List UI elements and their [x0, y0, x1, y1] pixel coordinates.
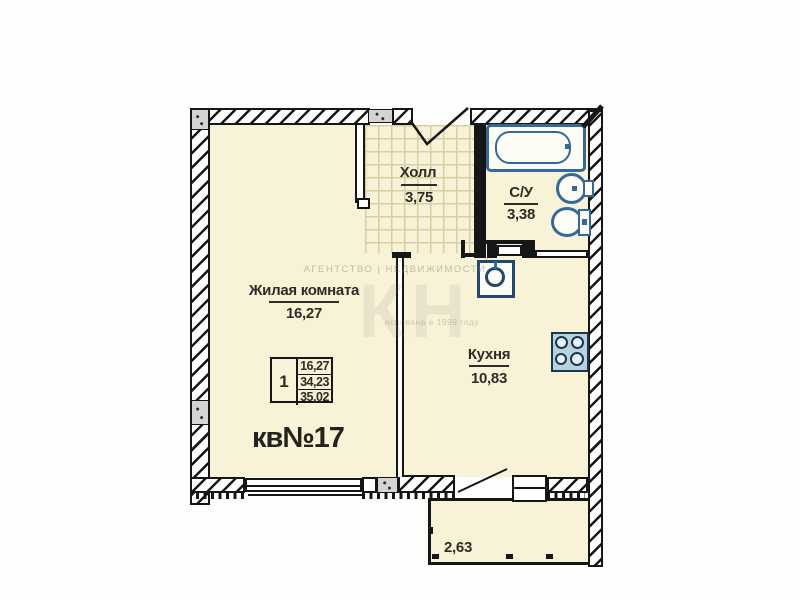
wall-bottom-corner	[190, 477, 245, 493]
wall-pier-grey	[377, 477, 398, 493]
balcony-area: 2,63	[438, 539, 478, 556]
hall-wall-stub-h	[461, 253, 486, 257]
wall-left	[190, 108, 210, 505]
kitchen-label: Кухня	[459, 347, 519, 364]
bathroom-wall-thin	[535, 250, 588, 258]
balcony-tick	[546, 554, 553, 559]
bathroom-wall-left	[474, 125, 486, 258]
bathroom-door-jamb	[487, 244, 497, 258]
wall-top-stub	[392, 108, 413, 125]
balcony-door-window	[512, 475, 547, 502]
wall-right	[588, 110, 603, 567]
bathroom-door-jamb	[522, 242, 535, 258]
hall-underline	[401, 184, 437, 186]
stove-burner	[570, 352, 584, 366]
stove-burner	[571, 336, 584, 349]
sink-dot	[572, 186, 577, 191]
wc-area: 3,38	[501, 206, 541, 223]
sink-tap	[583, 180, 594, 197]
window-dash-strip	[362, 493, 458, 499]
wc-underline	[504, 203, 538, 205]
living-room-label: Жилая комната	[234, 283, 374, 300]
wall-left-block	[191, 400, 209, 425]
wall-pier-small	[362, 477, 377, 493]
bathroom-door-leaf	[497, 245, 522, 256]
living-room-underline	[269, 301, 339, 303]
wall-pier	[368, 109, 393, 123]
wall-left-block	[191, 109, 209, 130]
bathtub-inner	[495, 131, 571, 164]
balcony-tick	[506, 554, 513, 559]
rooms-count-cell: 1	[272, 359, 298, 405]
wall-bottom-right	[547, 477, 588, 493]
stove-burner	[555, 336, 568, 349]
window-glass-line	[247, 485, 360, 487]
kitchen-underline	[469, 365, 509, 367]
window-dash-strip	[196, 493, 248, 499]
wall-bottom-mid	[398, 475, 455, 493]
washing-machine-tick	[494, 261, 497, 269]
balcony-tick	[429, 527, 433, 534]
total-area-cell: 35,02	[298, 390, 331, 405]
hall-label: Холл	[388, 165, 448, 182]
washing-machine-drum	[485, 267, 505, 287]
wall-top-bathroom	[470, 108, 603, 125]
hall-area: 3,75	[399, 189, 439, 206]
living-room-area: 16,27	[284, 305, 324, 322]
window-sill-line	[248, 494, 362, 496]
partition-living-kitchen	[396, 258, 404, 477]
kitchen-area: 10,83	[469, 370, 509, 387]
apartment-number: кв№17	[252, 422, 344, 455]
living-area-cell: 16,27	[298, 359, 331, 375]
bathtub-drain	[565, 144, 570, 149]
apartment-info-table: 1 16,27 34,23 35,02	[270, 357, 333, 403]
partition-kitchen-jamb	[392, 252, 411, 258]
window-glass-line	[514, 487, 545, 489]
wall-top-left	[190, 108, 370, 125]
partition-hall-living-jamb	[357, 198, 370, 209]
partition-hall-living	[355, 123, 365, 203]
stove-burner	[555, 353, 567, 365]
apartment-area-cell: 34,23	[298, 375, 331, 391]
window-dash-strip	[547, 493, 585, 499]
toilet-dot	[582, 219, 587, 225]
floor-plan: 2,63	[0, 0, 800, 600]
wc-label: С/У	[501, 185, 541, 202]
